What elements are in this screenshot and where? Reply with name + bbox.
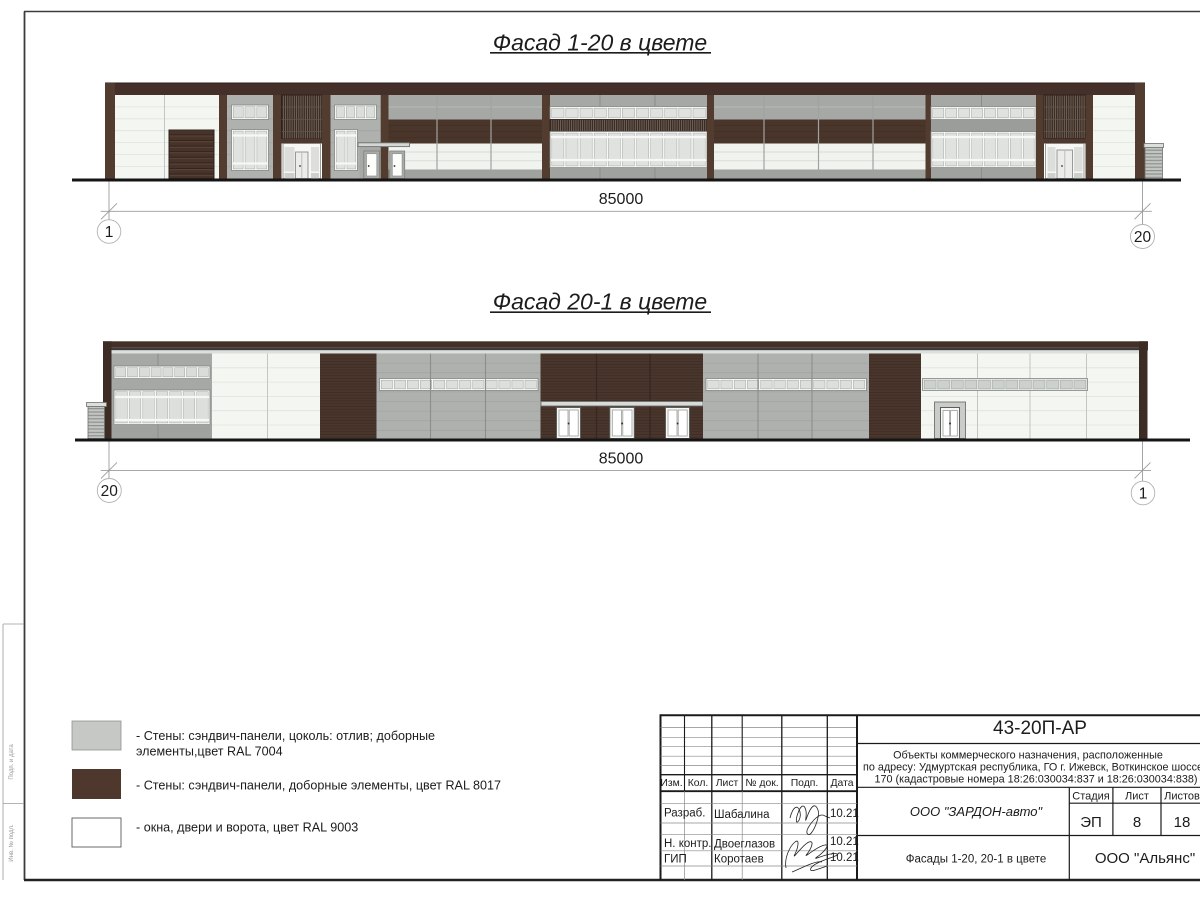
svg-text:Н. контр.: Н. контр. <box>664 838 711 850</box>
svg-text:№ док.: № док. <box>745 778 778 789</box>
svg-text:43-20П-АР: 43-20П-АР <box>993 718 1087 739</box>
svg-text:ЭП: ЭП <box>1080 814 1102 831</box>
svg-text:ГИП: ГИП <box>664 854 687 866</box>
svg-text:1: 1 <box>105 224 114 241</box>
svg-text:ООО "Альянс": ООО "Альянс" <box>1095 850 1195 867</box>
svg-text:Коротаев: Коротаев <box>714 854 764 866</box>
svg-text:Фасад 20-1 в цвете: Фасад 20-1 в цвете <box>493 289 707 315</box>
svg-text:Разраб.: Разраб. <box>664 808 705 820</box>
svg-text:10.21: 10.21 <box>830 836 859 848</box>
svg-text:85000: 85000 <box>599 451 644 468</box>
svg-text:- окна, двери и ворота, цвет R: - окна, двери и ворота, цвет RAL 9003 <box>136 821 358 835</box>
svg-text:Фасад 1-20 в цвете: Фасад 1-20 в цвете <box>493 29 707 55</box>
svg-text:Инв. № подл.: Инв. № подл. <box>8 824 15 862</box>
svg-text:- Стены: сэндвич-панели, цокол: - Стены: сэндвич-панели, цоколь: отлив; … <box>136 729 435 743</box>
svg-text:20: 20 <box>101 483 119 500</box>
svg-text:Подп. и дата: Подп. и дата <box>9 744 15 780</box>
svg-text:18: 18 <box>1174 814 1191 831</box>
svg-text:85000: 85000 <box>599 191 644 208</box>
svg-text:Листов: Листов <box>1164 791 1200 803</box>
svg-text:20: 20 <box>1134 229 1152 246</box>
svg-text:Стадия: Стадия <box>1072 791 1110 803</box>
svg-text:1: 1 <box>1139 486 1148 503</box>
svg-text:170 (кадастровые номера 18:26:: 170 (кадастровые номера 18:26:030034:837… <box>875 774 1198 786</box>
svg-text:Лист: Лист <box>716 778 739 789</box>
svg-text:Фасады 1-20, 20-1 в цвете: Фасады 1-20, 20-1 в цвете <box>906 854 1047 866</box>
svg-text:Изм.: Изм. <box>660 778 682 789</box>
svg-text:Дата: Дата <box>830 778 853 789</box>
svg-text:Лист: Лист <box>1125 791 1149 803</box>
svg-text:Подп.: Подп. <box>791 778 819 789</box>
svg-text:ООО "ЗАРДОН-авто": ООО "ЗАРДОН-авто" <box>910 804 1044 819</box>
svg-text:Двоеглазов: Двоеглазов <box>714 839 775 851</box>
svg-text:Шабалина: Шабалина <box>714 809 770 821</box>
svg-text:по адресу: Удмуртская республи: по адресу: Удмуртская республика, ГО г. … <box>863 762 1200 774</box>
svg-text:элементы,цвет RAL 7004: элементы,цвет RAL 7004 <box>136 745 283 759</box>
svg-text:10.21: 10.21 <box>830 808 859 820</box>
svg-text:Кол.: Кол. <box>688 778 709 789</box>
svg-text:Объекты коммерческого назначен: Объекты коммерческого назначения, распол… <box>893 750 1163 762</box>
svg-text:- Стены: сэндвич-панели, добор: - Стены: сэндвич-панели, доборные элемен… <box>136 779 501 793</box>
svg-text:8: 8 <box>1133 814 1141 831</box>
